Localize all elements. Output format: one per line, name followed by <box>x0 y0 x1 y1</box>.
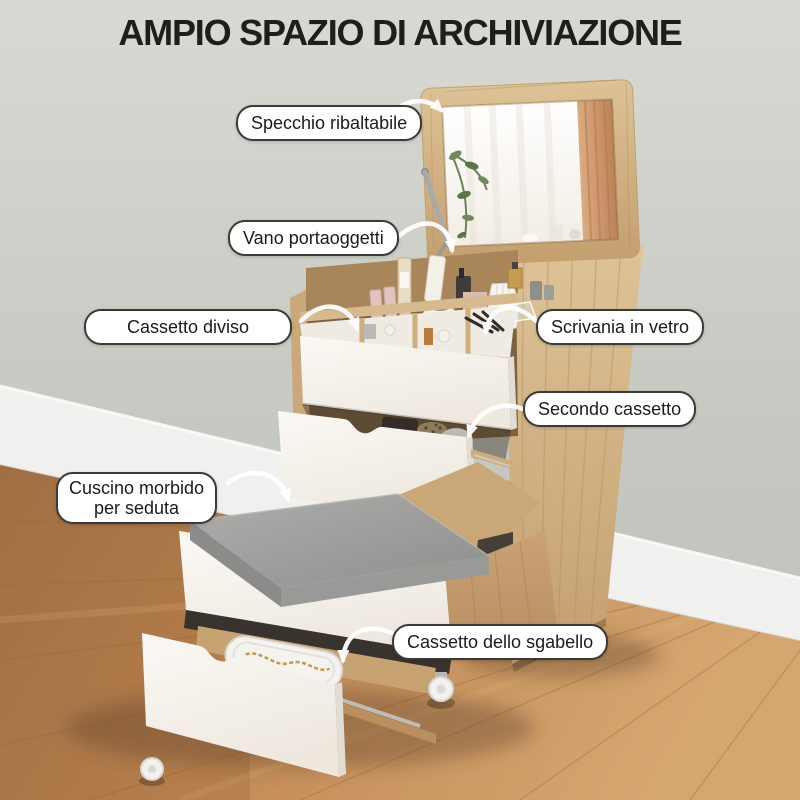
caster-wheel <box>139 758 165 786</box>
callout-scrivania-in-vetro: Scrivania in vetro <box>536 309 704 345</box>
callout-secondo-cassetto: Secondo cassetto <box>523 391 696 427</box>
mirror <box>420 79 640 266</box>
callout-line-2: per seduta <box>94 498 179 518</box>
product-feature-image: AMPIO SPAZIO DI ARCHIVIAZIONE Specchio r… <box>0 0 800 800</box>
callout-cassetto-sgabello: Cassetto dello sgabello <box>392 624 608 660</box>
callout-specchio-ribaltabile: Specchio ribaltabile <box>236 105 422 141</box>
callout-cassetto-diviso: Cassetto diviso <box>84 309 292 345</box>
callout-cuscino-morbido: Cuscino morbido per seduta <box>56 472 217 524</box>
callout-vano-portaoggetti: Vano portaoggetti <box>228 220 399 256</box>
page-title: AMPIO SPAZIO DI ARCHIVIAZIONE <box>0 12 800 54</box>
callout-line-1: Cuscino morbido <box>69 478 204 498</box>
